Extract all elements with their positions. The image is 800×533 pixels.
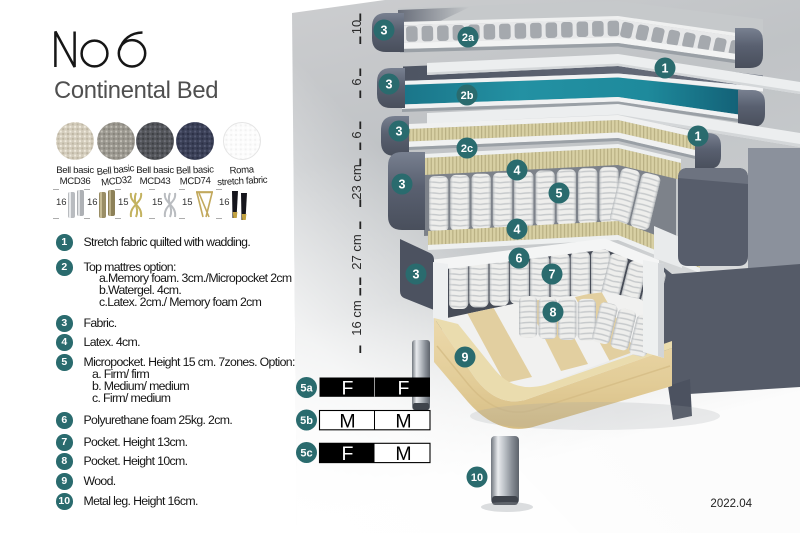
svg-text:2b: 2b [461, 90, 474, 102]
svg-text:4: 4 [514, 164, 521, 178]
svg-text:M: M [339, 410, 355, 432]
svg-text:5: 5 [556, 187, 563, 201]
svg-text:3: 3 [413, 268, 420, 282]
svg-text:16 cm: 16 cm [349, 300, 364, 335]
svg-text:F: F [342, 377, 354, 399]
svg-text:1: 1 [695, 130, 702, 144]
svg-text:1: 1 [662, 62, 669, 76]
svg-text:8: 8 [550, 306, 557, 320]
svg-text:7: 7 [549, 268, 556, 282]
svg-text:6: 6 [349, 131, 364, 138]
svg-text:3: 3 [381, 24, 388, 38]
svg-text:F: F [398, 377, 410, 399]
svg-text:3: 3 [386, 78, 393, 92]
svg-text:5b: 5b [300, 415, 313, 427]
svg-text:27 cm: 27 cm [349, 234, 364, 269]
svg-text:2022.04: 2022.04 [710, 498, 752, 510]
svg-text:2a: 2a [462, 32, 475, 44]
svg-text:4: 4 [514, 223, 521, 237]
svg-text:M: M [395, 443, 411, 465]
svg-text:2c: 2c [461, 143, 473, 155]
svg-text:5a: 5a [300, 382, 313, 394]
svg-text:23 cm: 23 cm [349, 164, 364, 199]
svg-text:9: 9 [462, 351, 469, 365]
svg-text:5c: 5c [300, 447, 312, 459]
svg-text:M: M [395, 410, 411, 432]
svg-text:10: 10 [471, 472, 483, 484]
svg-text:6: 6 [349, 78, 364, 85]
svg-text:6: 6 [516, 252, 523, 266]
svg-text:3: 3 [399, 178, 406, 192]
svg-text:F: F [342, 443, 354, 465]
svg-text:3: 3 [396, 125, 403, 139]
svg-text:10: 10 [349, 20, 364, 34]
